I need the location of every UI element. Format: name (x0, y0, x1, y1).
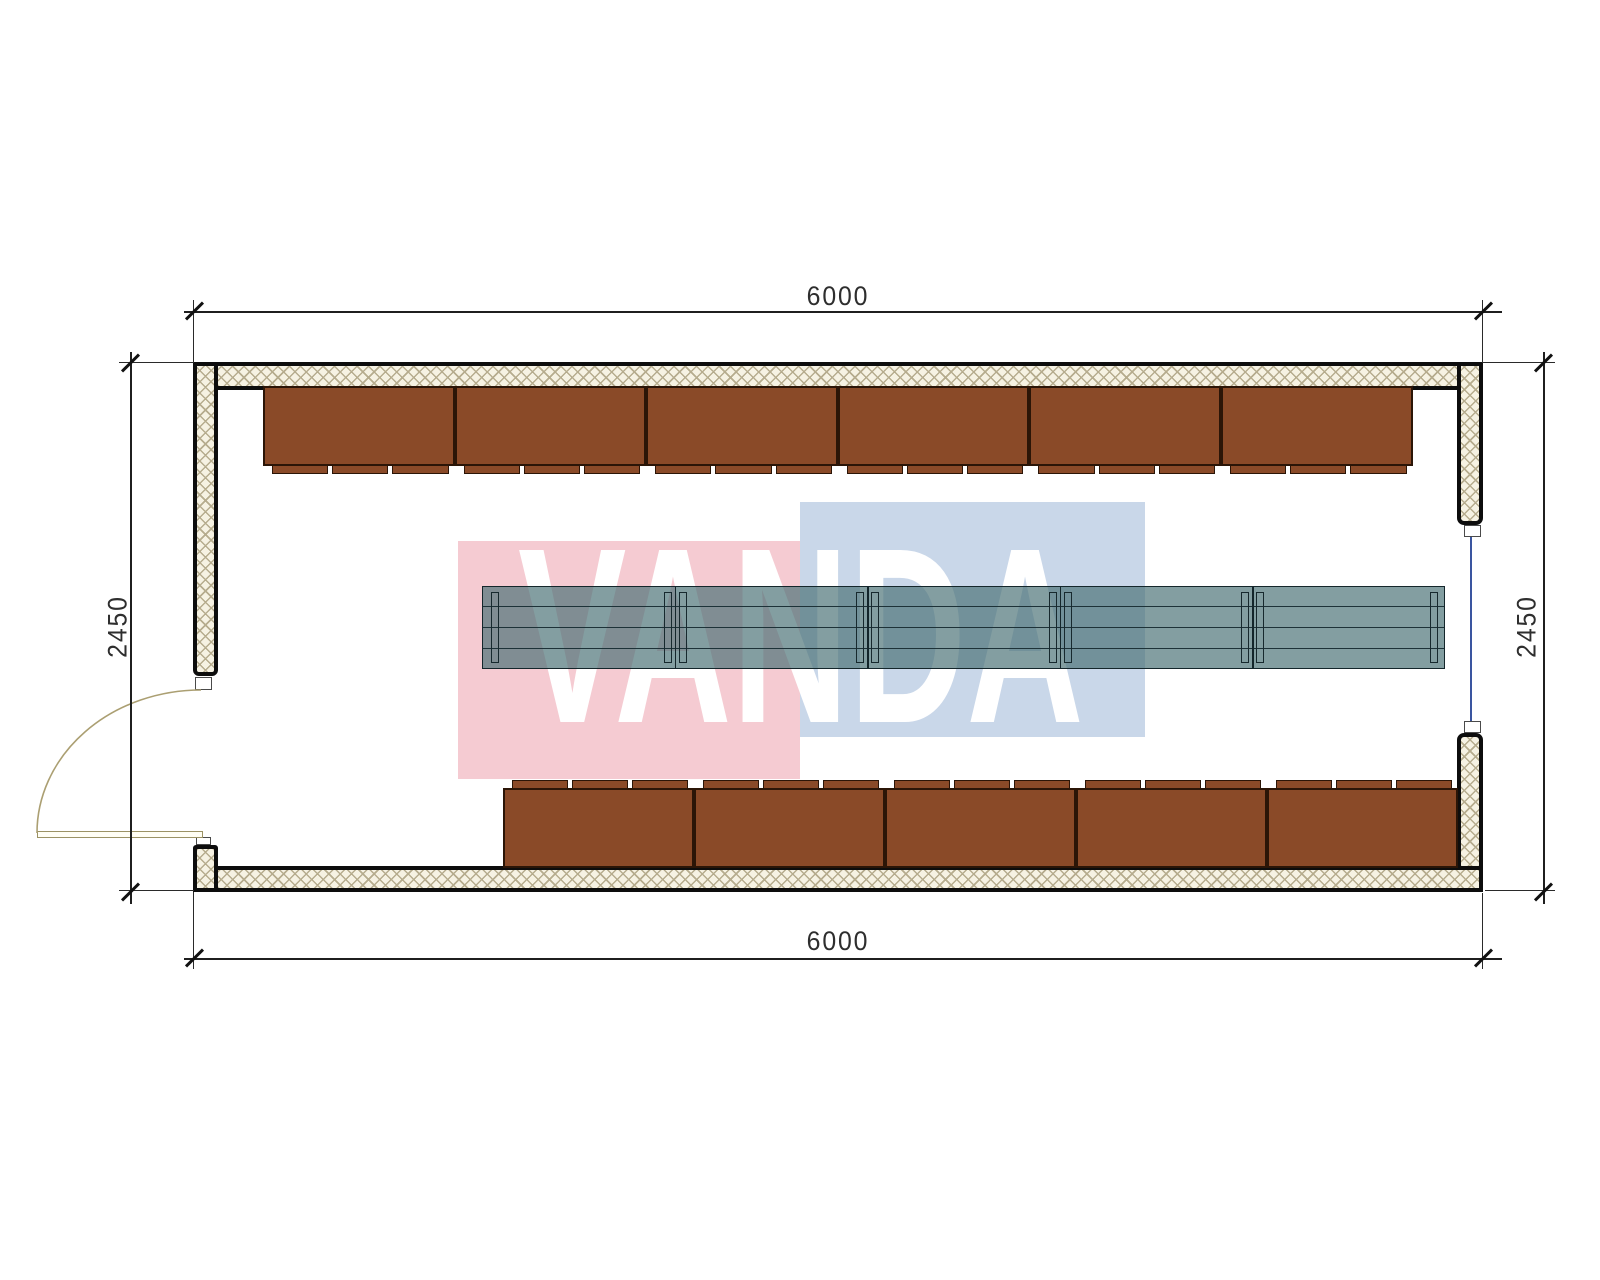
bench-tab (894, 780, 950, 789)
bench-tab (1230, 465, 1286, 474)
bench-tab (1290, 465, 1346, 474)
bench-tab (776, 465, 832, 474)
bench-tab (715, 465, 771, 474)
bench-tab (1085, 780, 1141, 789)
bench-tab (954, 780, 1010, 789)
bench-tab (763, 780, 819, 789)
bench-tab (823, 780, 879, 789)
bench-tab (332, 465, 388, 474)
bench-tab (703, 780, 759, 789)
dim-label-top: 6000 (783, 281, 893, 312)
window-glass-line (1470, 537, 1472, 721)
table-leg (1064, 592, 1072, 663)
bench-tab (272, 465, 328, 474)
bench-unit (1221, 386, 1413, 466)
bench-tab (1038, 465, 1094, 474)
table-segment-joint (1252, 587, 1254, 668)
bench-unit (646, 386, 838, 466)
bench-tab (572, 780, 628, 789)
bench-tab (655, 465, 711, 474)
table-leg (1241, 592, 1249, 663)
bench-unit (455, 386, 647, 466)
floor-plan: VANDA 6000 6000 2450 2450 (0, 0, 1600, 1280)
dim-label-bottom: 6000 (783, 926, 893, 957)
door-jamb-top (195, 677, 212, 690)
bench-tab (464, 465, 520, 474)
bench-unit (503, 788, 694, 868)
bench-tab (1205, 780, 1261, 789)
window-jamb-bottom (1464, 721, 1481, 733)
table-segment-joint (1060, 587, 1062, 668)
dim-label-left: 2450 (103, 571, 134, 681)
table-leg (1430, 592, 1438, 663)
bench-tab (1336, 780, 1392, 789)
table-edge-line (483, 606, 1444, 607)
bench-tab (1145, 780, 1201, 789)
bench-tab (1396, 780, 1452, 789)
table-leg (679, 592, 687, 663)
wall-left (193, 362, 218, 676)
dim-line-right (1543, 352, 1545, 904)
table-leg (871, 592, 879, 663)
bench-tab (584, 465, 640, 474)
table-edge-line (483, 627, 1444, 628)
bench-unit (263, 386, 455, 466)
table-segment-joint (675, 587, 677, 668)
dim-line-bottom (184, 958, 1502, 960)
table-leg (664, 592, 672, 663)
bench-tab (847, 465, 903, 474)
window-jamb-top (1464, 525, 1481, 537)
door-leaf (37, 831, 203, 838)
bench-unit (838, 386, 1030, 466)
table-leg (856, 592, 864, 663)
bench-tab (907, 465, 963, 474)
wall-right-upper (1457, 362, 1483, 525)
bench-unit (1076, 788, 1267, 868)
wall-bottom (193, 866, 1483, 892)
bench-tab (1099, 465, 1155, 474)
bench-tab (512, 780, 568, 789)
bench-tab (392, 465, 448, 474)
bench-tab (524, 465, 580, 474)
bench-tab (1276, 780, 1332, 789)
bench-unit (1029, 386, 1221, 466)
dim-label-right: 2450 (1512, 571, 1543, 681)
bench-tab (1159, 465, 1215, 474)
wall-bottom-left-stub (193, 845, 218, 892)
bench-unit (1267, 788, 1458, 868)
bench-tab (967, 465, 1023, 474)
door-jamb-bottom (196, 837, 211, 845)
bench-unit (694, 788, 885, 868)
table-leg (1049, 592, 1057, 663)
table-leg (491, 592, 499, 663)
table-segment-joint (867, 587, 869, 668)
table-edge-line (483, 648, 1444, 649)
bench-tab (1014, 780, 1070, 789)
bench-tab (632, 780, 688, 789)
bench-unit (885, 788, 1076, 868)
table-leg (1256, 592, 1264, 663)
bench-tab (1350, 465, 1406, 474)
